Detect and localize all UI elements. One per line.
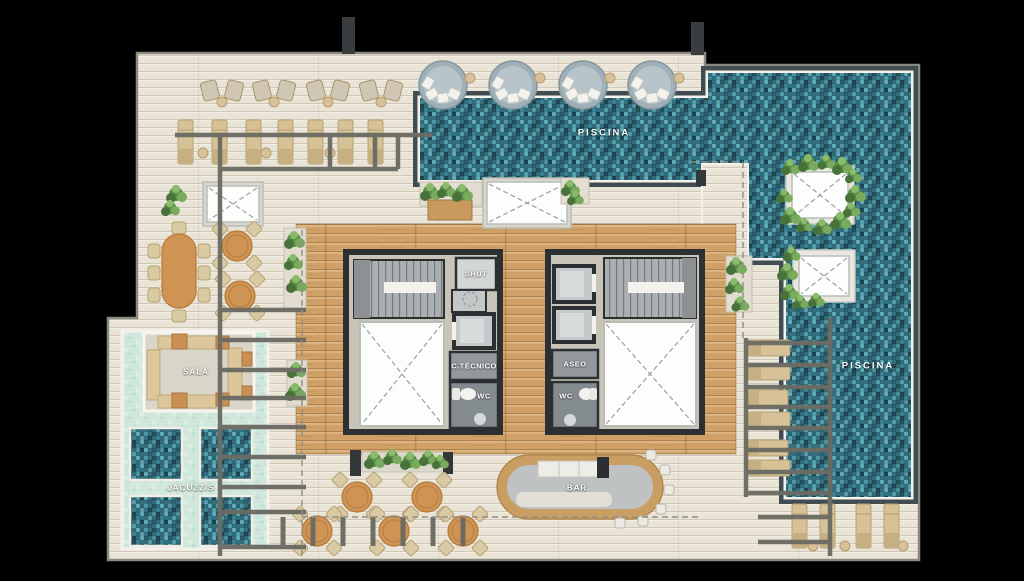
elevator-right-2 [552,306,596,344]
toilet-tank [452,388,460,400]
skylight-left [360,322,444,426]
sink-left [474,413,486,425]
roof-columns [342,17,704,55]
elevator-right-1 [552,264,596,304]
stairs-left [354,260,444,318]
floor-plan-graphic [0,0,1024,581]
room-technical [450,352,498,380]
chute-room [452,290,486,312]
toilet-left [460,388,476,400]
room-aseo [552,350,598,378]
skylight-right [604,322,696,426]
stairs-right [604,258,696,318]
sink-right [564,414,576,426]
bottom-planter [350,449,453,476]
room-wc-left [450,382,498,428]
core-left [346,252,500,432]
room-wc-right [552,382,598,428]
bar-post [597,457,609,478]
pool-island-planter-a [776,154,866,235]
core-right [548,252,702,432]
bar-top-counter [538,461,600,477]
top-skylight [483,178,571,228]
elevator-left [452,312,496,350]
room-shut [456,258,496,290]
rooftop-floor-plan: PISCINA PISCINA SALA JACUZZIS BAR SHUT C… [0,0,1024,581]
